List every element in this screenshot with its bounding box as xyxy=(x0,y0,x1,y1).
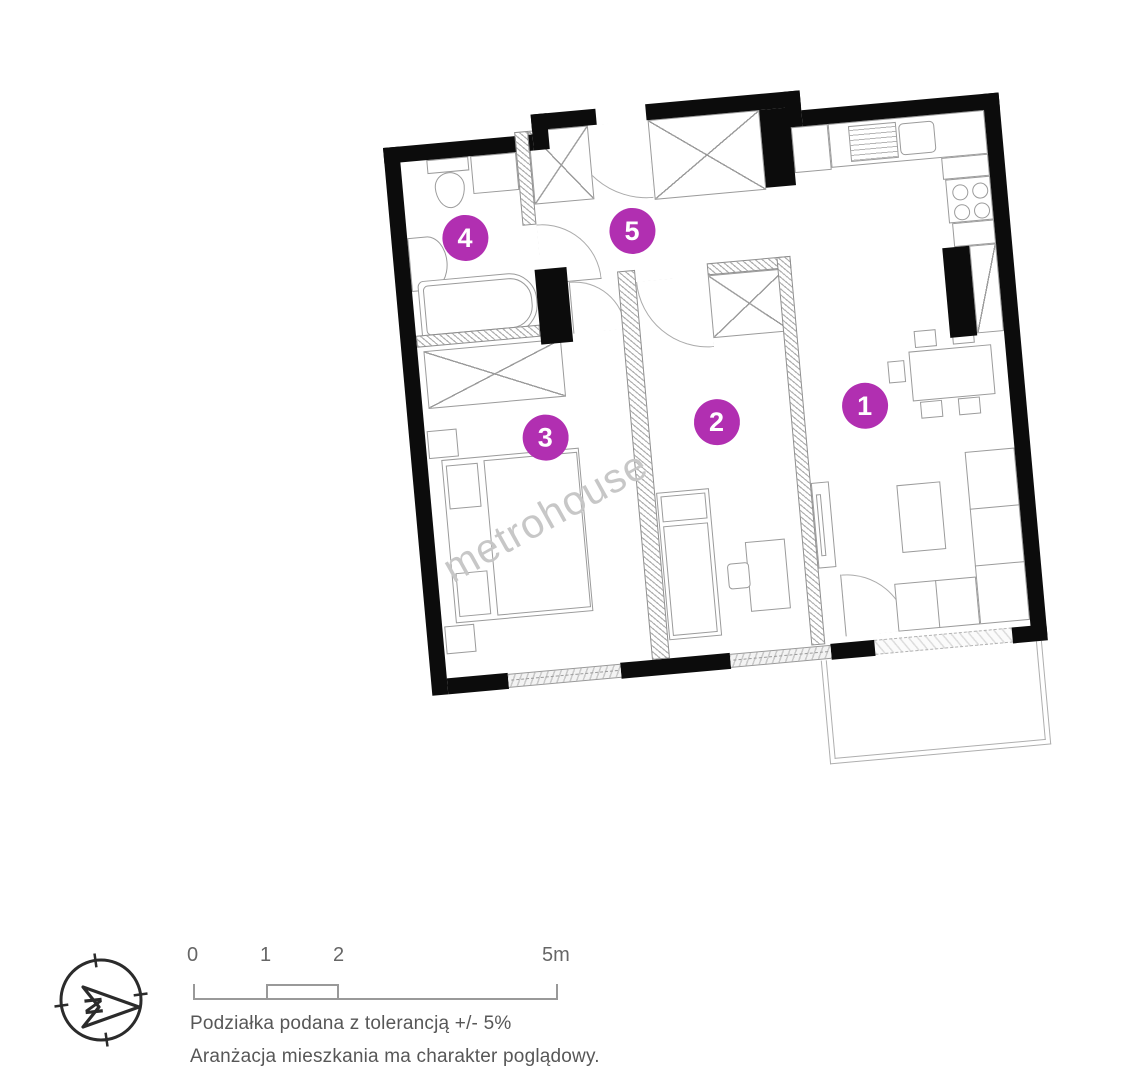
scale-label-2: 2 xyxy=(333,944,344,967)
floor-plan-page: 1 2 3 4 5 metrohouse N 0 1 2 5m Podziałk… xyxy=(0,0,1123,1080)
dining-chair-1 xyxy=(914,329,937,348)
desk-chair xyxy=(727,562,751,590)
scale-baseline xyxy=(193,998,558,1000)
wall-bottom-2 xyxy=(620,653,731,679)
dining-chair-4 xyxy=(958,396,981,415)
compass: N xyxy=(52,950,152,1050)
apartment-floor-plan: 1 2 3 4 5 xyxy=(383,93,1048,696)
scale-step-segment xyxy=(266,984,339,1000)
nightstand-2 xyxy=(444,624,476,655)
compass-north-letter: N xyxy=(78,996,108,1017)
room3-wardrobe xyxy=(423,339,566,409)
kitchen-cabinet-small xyxy=(791,124,832,173)
wall-bottom-1 xyxy=(447,673,509,694)
dining-chair-3 xyxy=(920,400,943,419)
hall-wardrobe-right xyxy=(648,110,767,200)
room-badge-4: 4 xyxy=(440,213,490,263)
kitchen-sink-basin xyxy=(898,120,937,155)
room2-door-arc xyxy=(636,275,714,353)
scale-label-0: 0 xyxy=(187,944,198,967)
double-bed-pillow-1 xyxy=(446,463,482,510)
room-badge-1: 1 xyxy=(840,381,890,431)
kitchen-sink-drainer xyxy=(848,122,899,162)
scale-bar: 0 1 2 5m xyxy=(190,944,570,1006)
room-number-5: 5 xyxy=(625,215,640,246)
coffee-table xyxy=(896,481,946,553)
note-tolerance: Podziałka podana z tolerancją +/- 5% xyxy=(190,1013,511,1035)
dining-chair-5 xyxy=(887,360,906,383)
wall-bottom-4 xyxy=(1012,624,1048,643)
desk xyxy=(745,539,791,612)
scale-label-1: 1 xyxy=(260,944,271,967)
room-badge-2: 2 xyxy=(692,397,742,447)
wall-left xyxy=(383,147,448,696)
single-bed-pillow xyxy=(660,492,707,522)
dining-table xyxy=(908,344,995,401)
bathroom-cabinet xyxy=(470,152,519,194)
scale-tick-start xyxy=(193,984,195,1000)
room-badge-5: 5 xyxy=(607,206,657,256)
room-number-3: 3 xyxy=(538,422,553,453)
note-arrangement: Aranżacja mieszkania ma charakter pogląd… xyxy=(190,1046,600,1068)
toilet-bowl xyxy=(433,171,466,210)
nightstand-1 xyxy=(427,429,459,460)
balcony-rail-inner xyxy=(826,641,1046,759)
room-number-2: 2 xyxy=(709,407,724,438)
scale-tick-end xyxy=(556,984,558,1000)
room-number-4: 4 xyxy=(458,222,473,253)
room-number-1: 1 xyxy=(858,390,873,421)
scale-label-5m: 5m xyxy=(542,944,570,967)
wall-pier-bathroom xyxy=(535,267,574,345)
